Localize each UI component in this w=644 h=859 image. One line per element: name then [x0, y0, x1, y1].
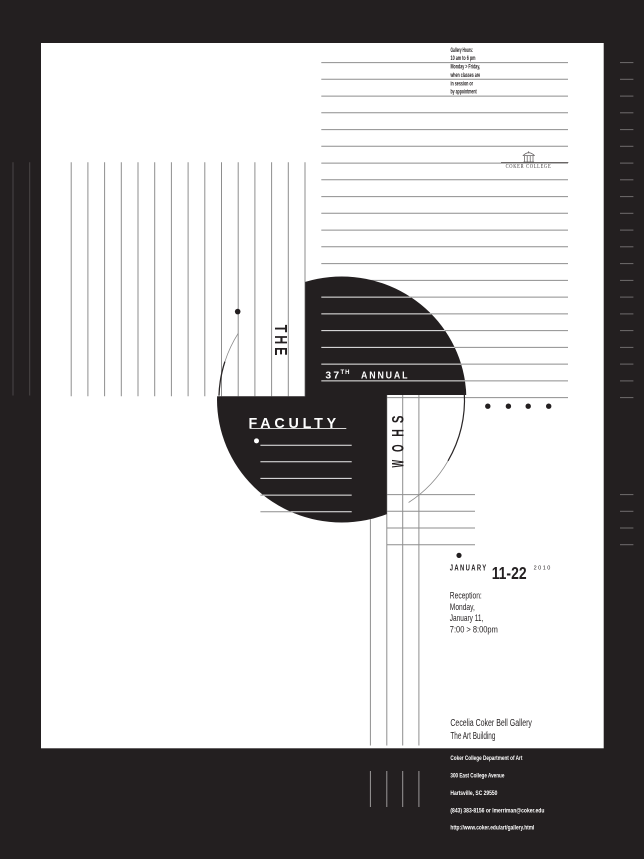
svg-text:COKER COLLEGE: COKER COLLEGE [506, 164, 552, 170]
svg-text:7:00 > 8:00pm: 7:00 > 8:00pm [450, 624, 498, 634]
svg-text:Coker College Department of Ar: Coker College Department of Art [450, 755, 523, 762]
svg-text:in session or: in session or [451, 80, 474, 87]
svg-text:when classes are: when classes are [450, 72, 480, 79]
svg-text:ANNUAL: ANNUAL [361, 370, 409, 381]
svg-text:300 East College Avenue: 300 East College Avenue [450, 773, 504, 780]
svg-text:January 11,: January 11, [450, 613, 484, 623]
svg-text:FACULTY: FACULTY [249, 415, 341, 432]
svg-text:Monday,: Monday, [450, 602, 475, 612]
svg-text:Cecelia Coker Bell Gallery: Cecelia Coker Bell Gallery [450, 718, 532, 729]
svg-text:O: O [389, 444, 408, 452]
svg-text:(843) 383-8156 or lmerriman@: (843) 383-8156 or lmerriman@coker.edu [450, 807, 544, 814]
svg-text:The Art Building: The Art Building [450, 731, 495, 742]
svg-text:THE: THE [271, 325, 291, 359]
svg-text:TH: TH [341, 370, 351, 376]
svg-text:JANUARY: JANUARY [450, 564, 488, 573]
svg-text:Gallery Hours:: Gallery Hours: [451, 47, 474, 54]
svg-text:http://www.coker.edu/art/galle: http://www.coker.edu/art/gallery.html [450, 825, 534, 832]
svg-text:W: W [389, 459, 408, 467]
svg-text:2010: 2010 [534, 565, 551, 571]
svg-text:37: 37 [325, 370, 341, 381]
svg-text:Hartsville, SC 29550: Hartsville, SC 29550 [450, 790, 497, 797]
svg-text:S: S [389, 415, 408, 423]
svg-text:11-22: 11-22 [492, 563, 527, 583]
svg-text:H: H [389, 429, 408, 437]
svg-text:by appointment: by appointment [451, 89, 478, 96]
svg-text:Monday > Friday,: Monday > Friday, [451, 64, 481, 71]
svg-text:10 am to 6 pm: 10 am to 6 pm [451, 55, 476, 62]
svg-text:Reception:: Reception: [450, 591, 482, 601]
